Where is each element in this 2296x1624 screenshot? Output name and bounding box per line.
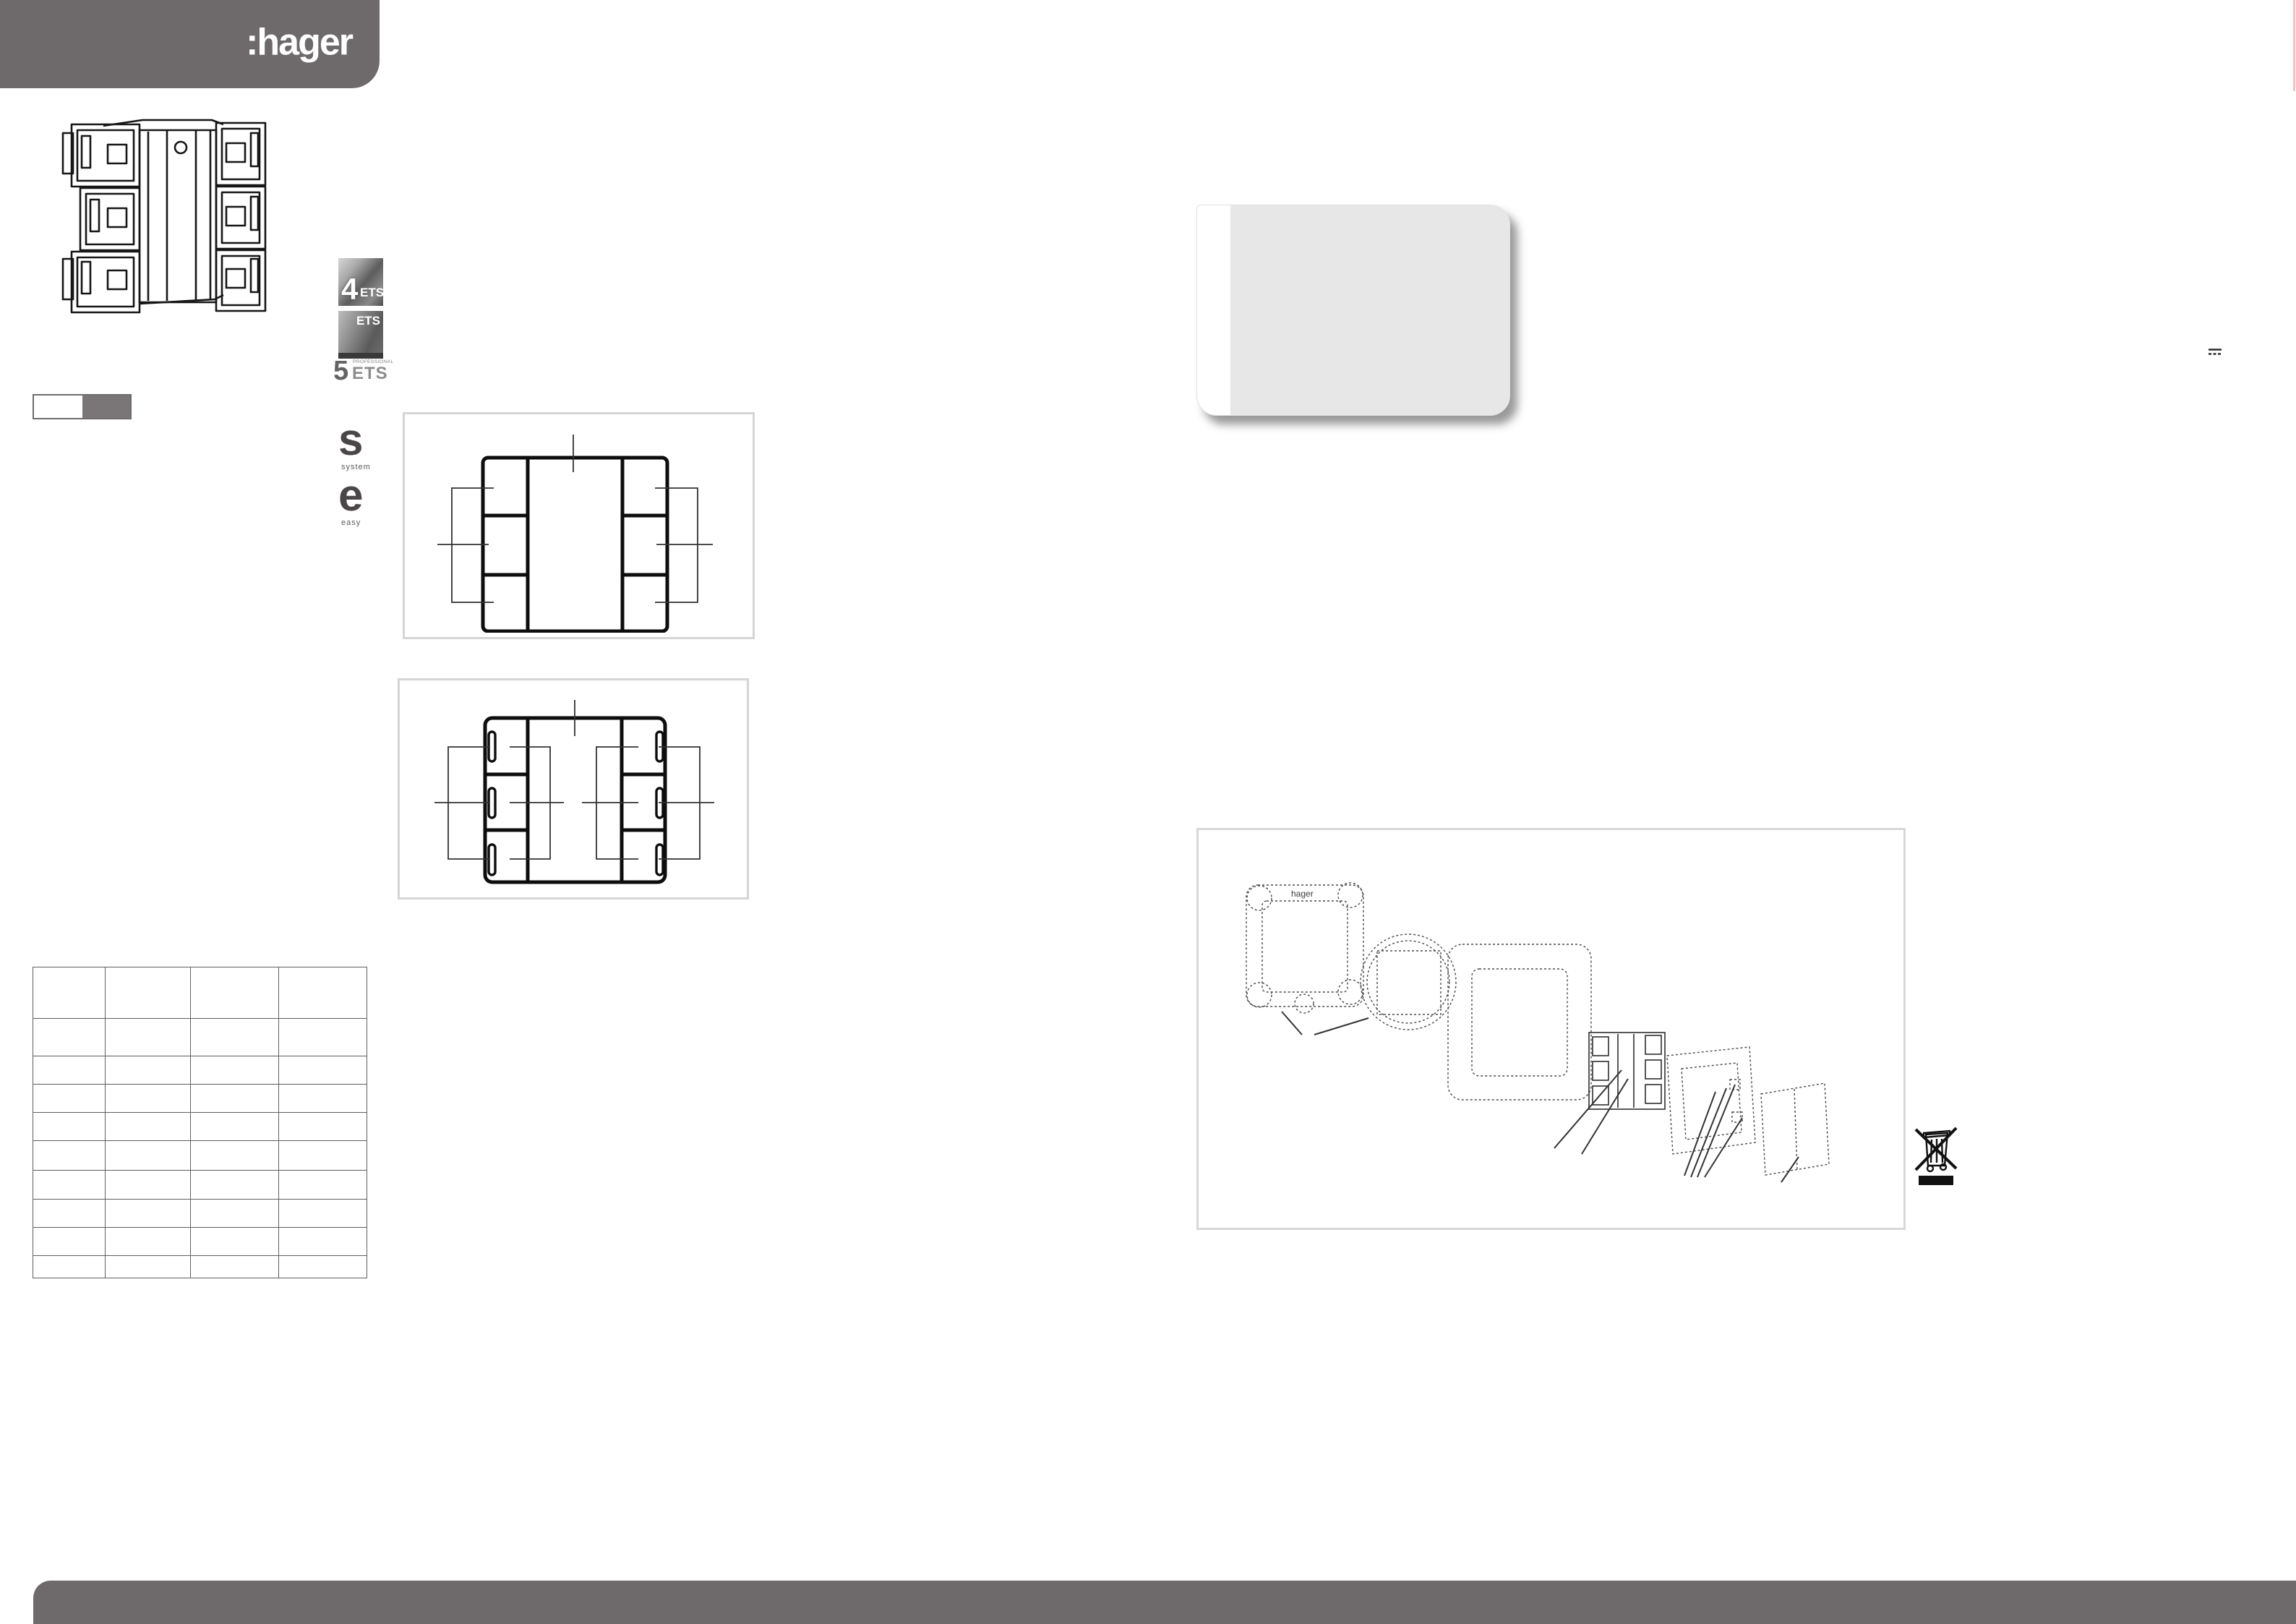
table-cell: [33, 1019, 106, 1056]
hager-logo: :hager: [246, 21, 352, 64]
ets5-label: ETS: [352, 364, 388, 384]
table-cell: [33, 1228, 106, 1256]
table-cell: [33, 1200, 106, 1228]
spec-table-body: [33, 967, 367, 1278]
button-layout-diagram-1: [403, 412, 755, 639]
table-cell: [106, 1019, 191, 1056]
table-cell: [33, 1256, 106, 1278]
system-logo: s system: [338, 422, 389, 471]
spec-table: [33, 967, 367, 1278]
table-cell: [191, 1019, 279, 1056]
plate-brand-label: hager: [1291, 889, 1314, 899]
swatch-white: [34, 396, 82, 418]
table-row: [33, 1228, 367, 1256]
table-cell: [106, 1171, 191, 1200]
easy-caption: easy: [341, 518, 389, 527]
dc-voltage-icon: [2207, 347, 2223, 357]
note-card-grey-area: [1230, 205, 1509, 415]
note-card: [1196, 205, 1510, 416]
table-cell: [279, 1019, 367, 1056]
table-cell: [191, 1256, 279, 1278]
table-cell: [106, 1141, 191, 1171]
table-cell: [106, 1228, 191, 1256]
table-cell: [279, 1056, 367, 1085]
color-swatch: [33, 394, 132, 419]
table-cell: [33, 967, 106, 1019]
table-row: [33, 1056, 367, 1085]
table-row: [33, 1141, 367, 1171]
product-drawing: [61, 114, 267, 315]
table-cell: [191, 1171, 279, 1200]
weee-icon: [1914, 1122, 1959, 1187]
table-row: [33, 1171, 367, 1200]
table-row: [33, 1200, 367, 1228]
ets-photo-badge: ETS: [338, 311, 383, 359]
table-cell: [191, 1141, 279, 1171]
table-cell: [279, 1141, 367, 1171]
table-cell: [191, 1056, 279, 1085]
table-cell: [191, 1113, 279, 1141]
table-cell: [33, 1056, 106, 1085]
table-cell: [191, 1085, 279, 1113]
easy-logo: e easy: [338, 477, 389, 527]
exploded-view-diagram: hager: [1196, 828, 1906, 1230]
table-cell: [33, 1113, 106, 1141]
table-cell: [279, 967, 367, 1019]
ets4-badge: 4 ETS: [338, 258, 383, 306]
table-cell: [106, 1200, 191, 1228]
table-cell: [106, 1256, 191, 1278]
swatch-grey: [82, 396, 131, 418]
footer-bar: [33, 1581, 2296, 1624]
table-cell: [279, 1171, 367, 1200]
table-cell: [279, 1113, 367, 1141]
table-row: [33, 1085, 367, 1113]
button-layout-diagram-2: [398, 678, 749, 899]
manual-page: :hager: [0, 0, 2296, 1624]
ets4-number: 4: [341, 274, 358, 304]
table-row: [33, 967, 367, 1019]
table-row: [33, 1019, 367, 1056]
table-cell: [106, 1056, 191, 1085]
ets4-label: ETS: [360, 286, 383, 300]
table-cell: [33, 1085, 106, 1113]
scan-artifact: [2293, 0, 2295, 91]
easy-glyph: e: [338, 477, 389, 516]
ets-photo-label: ETS: [356, 314, 380, 328]
table-cell: [33, 1141, 106, 1171]
table-cell: [279, 1228, 367, 1256]
system-glyph: s: [338, 422, 389, 460]
table-cell: [191, 967, 279, 1019]
table-cell: [106, 967, 191, 1019]
ets5-logo: 5 PROFESSIONAL ETS: [333, 359, 391, 382]
table-cell: [279, 1200, 367, 1228]
table-cell: [191, 1228, 279, 1256]
table-cell: [106, 1085, 191, 1113]
table-cell: [106, 1113, 191, 1141]
table-cell: [33, 1171, 106, 1200]
header-banner: :hager: [0, 0, 380, 88]
table-cell: [191, 1200, 279, 1228]
table-cell: [279, 1085, 367, 1113]
table-row: [33, 1256, 367, 1278]
ets5-number: 5: [333, 357, 348, 385]
system-caption: system: [341, 463, 389, 471]
table-row: [33, 1113, 367, 1141]
table-cell: [279, 1256, 367, 1278]
